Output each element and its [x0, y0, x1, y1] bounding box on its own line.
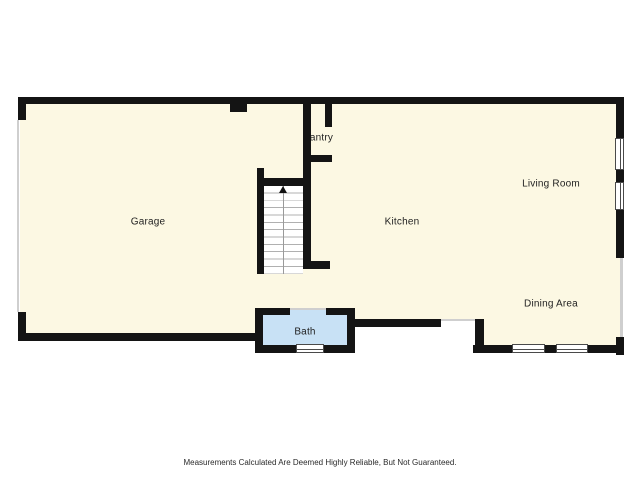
staircase: [264, 186, 303, 274]
room-label-garage: Garage: [131, 217, 166, 228]
stairs-up-arrow-icon: [279, 186, 287, 193]
kitchen-dining-opening: [441, 319, 475, 321]
window-pane-line: [297, 349, 323, 350]
wall-bath-top-left: [255, 308, 290, 315]
garage-door-opening: [17, 120, 19, 312]
dining-window-2-icon: [556, 344, 588, 353]
wall-right-upper: [616, 97, 624, 138]
wall-top: [18, 97, 623, 104]
room-label-living-room: Living Room: [522, 179, 580, 190]
wall-dining-step: [475, 319, 484, 353]
bath-window-icon: [296, 344, 324, 353]
room-label-bath: Bath: [294, 327, 315, 338]
room-label-dining-area: Dining Area: [524, 299, 578, 310]
dining-floor-extension: [475, 319, 621, 345]
bath-door-opening: [290, 308, 326, 310]
garage-floor-extension: [20, 319, 263, 333]
right-wall-opening: [620, 258, 623, 337]
window-pane-line: [557, 349, 587, 350]
room-label-kitchen: Kitchen: [385, 217, 420, 228]
staircase-center-line: [283, 186, 284, 274]
living-room-window-2-icon: [615, 182, 624, 210]
wall-top-left-stub: [18, 97, 26, 120]
window-pane-line: [513, 349, 544, 350]
wall-pantry-right: [325, 104, 332, 127]
dining-window-1-icon: [512, 344, 545, 353]
wall-garage-bottom: [18, 333, 263, 341]
window-pane-line: [620, 139, 621, 169]
floorplan-canvas: Garage Pantry Kitchen Living Room Dining…: [0, 0, 640, 480]
living-room-window-1-icon: [615, 138, 624, 170]
window-pane-line: [620, 183, 621, 209]
wall-stairs-bottom-stub: [303, 261, 330, 269]
wall-stairs-top: [257, 178, 303, 186]
wall-pantry-bottom: [303, 155, 332, 162]
wall-top-tab: [230, 104, 247, 112]
wall-dining-bottom: [473, 345, 624, 353]
wall-pantry-stairs-vertical: [303, 97, 311, 262]
wall-kitchen-bottom: [347, 319, 441, 327]
disclaimer-text: Measurements Calculated Are Deemed Highl…: [0, 458, 640, 467]
wall-right-lower: [616, 210, 624, 258]
wall-right-mid: [616, 170, 624, 182]
